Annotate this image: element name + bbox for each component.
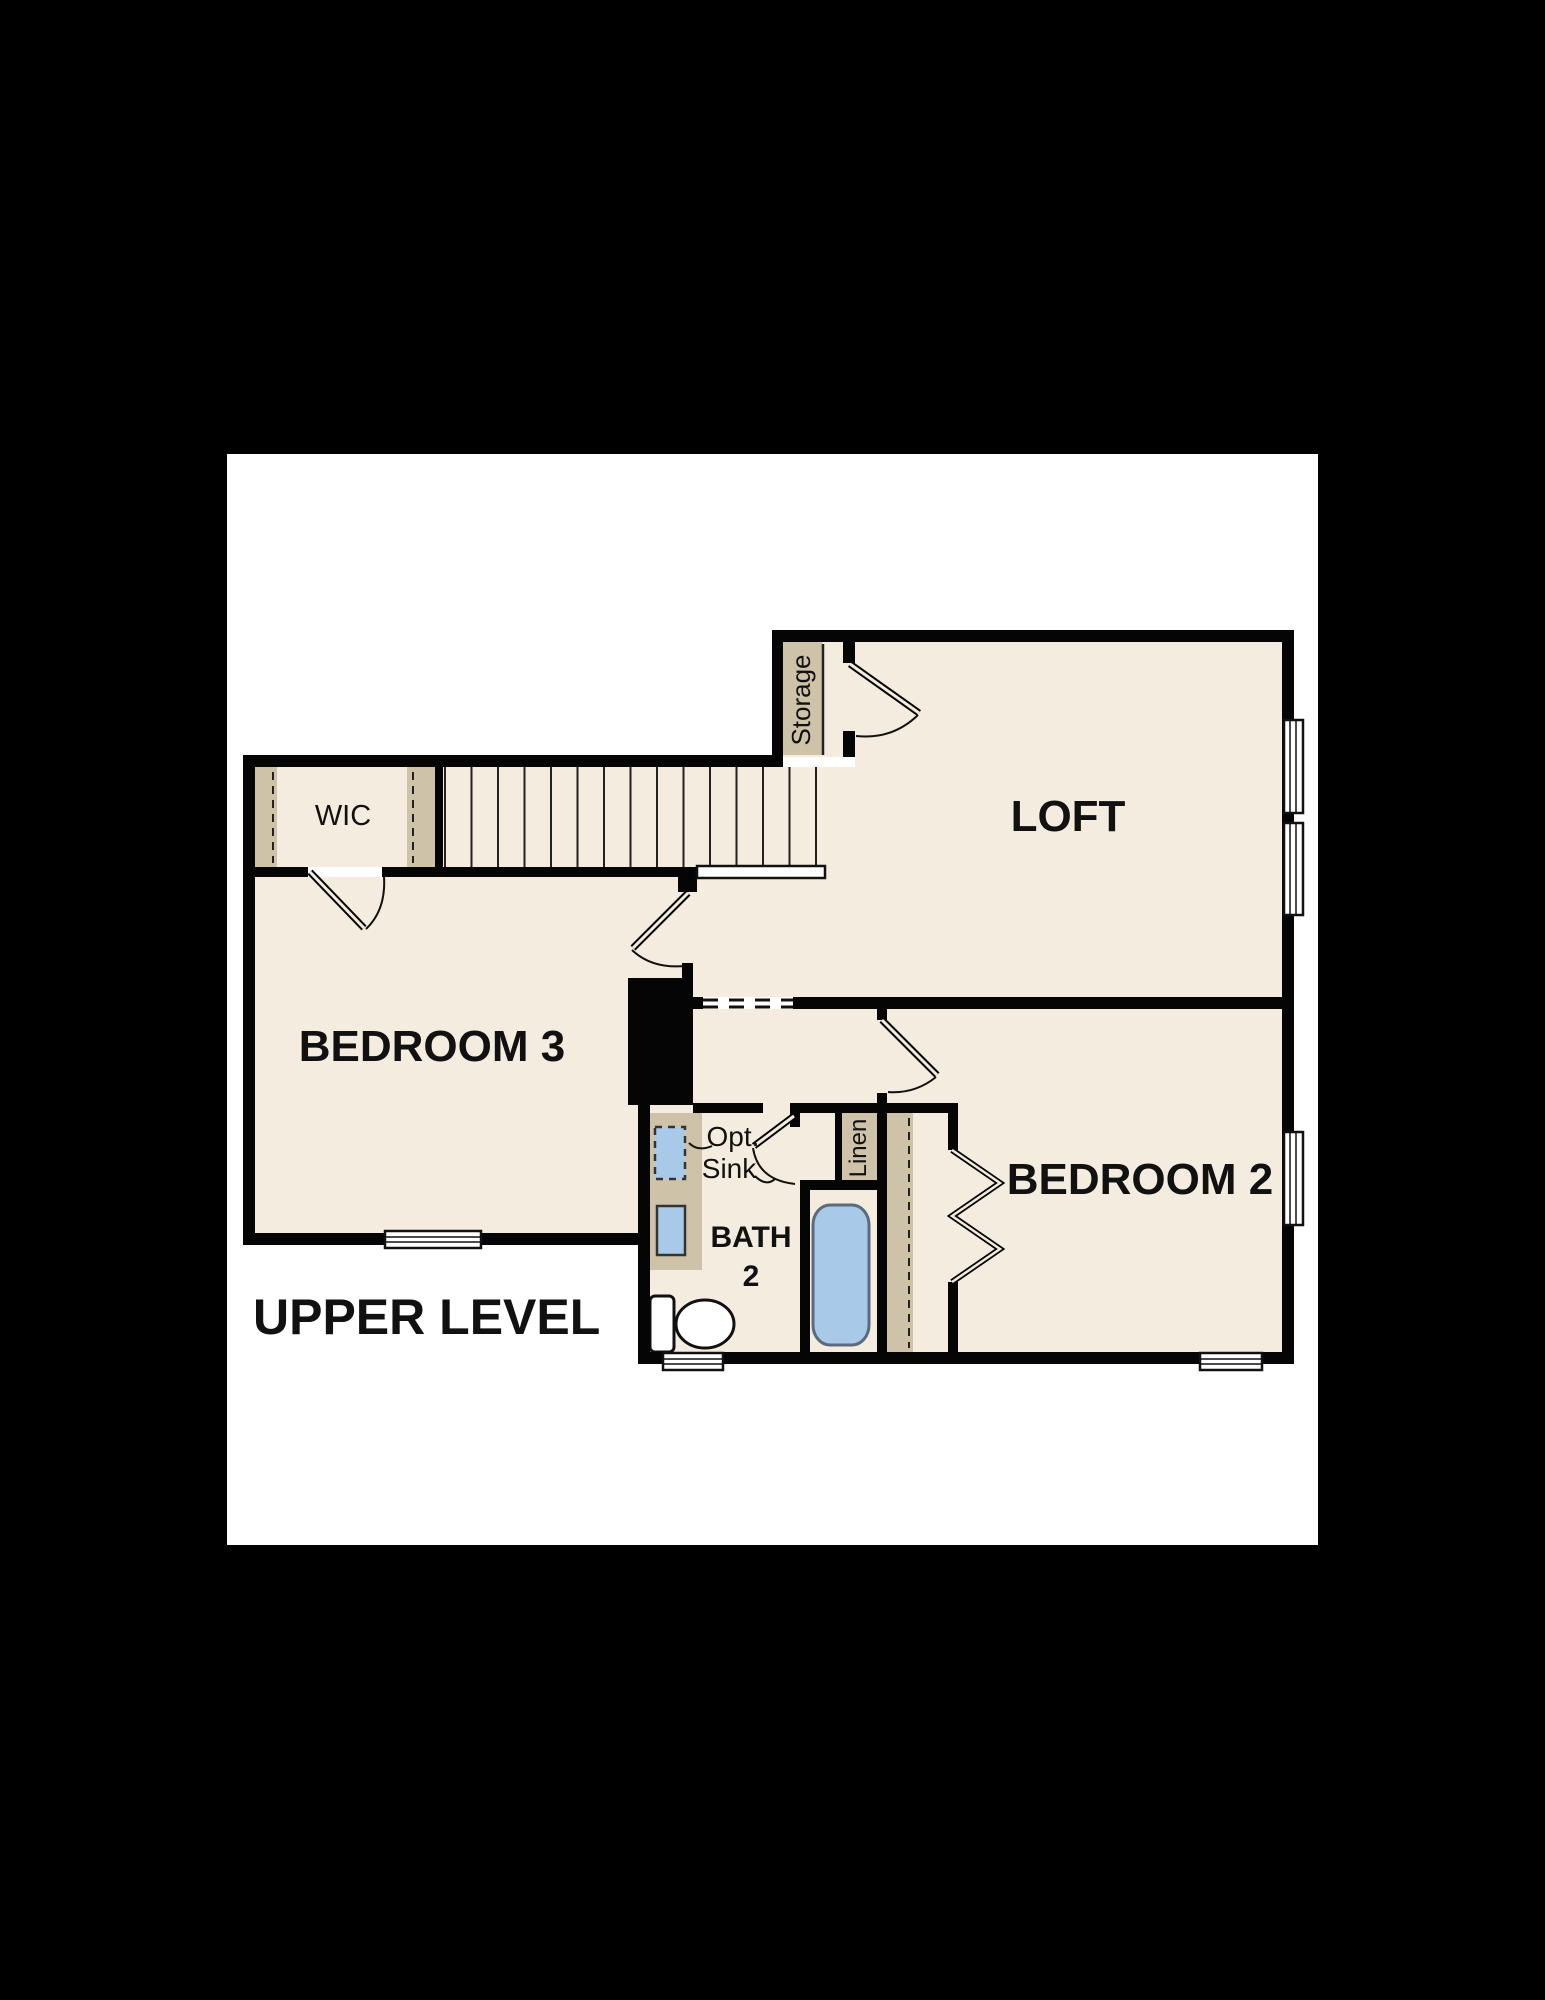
bathtub bbox=[813, 1205, 869, 1345]
wall-bath-left bbox=[638, 1105, 650, 1364]
floor-hall bbox=[628, 877, 1282, 997]
wall-linen-left bbox=[835, 1113, 842, 1190]
toilet-bowl bbox=[676, 1300, 734, 1348]
toilet bbox=[650, 1296, 734, 1352]
wall-chase bbox=[628, 978, 693, 1105]
wall-wic-bottom-right bbox=[382, 867, 443, 877]
wall-storage-left bbox=[772, 642, 783, 755]
wall-closet-front-top bbox=[948, 1113, 958, 1150]
wall-wic-stairs-top bbox=[243, 755, 783, 767]
room-label-loft: LOFT bbox=[1011, 792, 1126, 841]
wall-bottom bbox=[638, 1352, 1294, 1364]
wall-storage-stub-top bbox=[843, 642, 855, 663]
window-bath-bottom bbox=[663, 1353, 723, 1370]
wall-storage-stub-bottom bbox=[843, 731, 855, 757]
label-opt-sink-line1: Opt. bbox=[707, 1121, 760, 1152]
room-label-bath-line2: 2 bbox=[743, 1260, 760, 1293]
wall-tub-left bbox=[800, 1190, 810, 1352]
room-label-bedroom2: BEDROOM 2 bbox=[1007, 1155, 1273, 1204]
wall-bedroom2-left bbox=[877, 1093, 887, 1352]
room-label-bath-line1: BATH bbox=[710, 1221, 791, 1254]
window-bedroom3-bottom bbox=[385, 1231, 481, 1248]
wall-bath-top-left bbox=[693, 1103, 763, 1113]
wall-closet-top bbox=[887, 1103, 958, 1113]
wall-loft-bottom bbox=[793, 997, 1294, 1009]
wic-shelf-right bbox=[407, 767, 435, 867]
label-opt-sink-line2: Sink bbox=[702, 1153, 757, 1184]
toilet-tank bbox=[650, 1296, 674, 1352]
stair-railing bbox=[697, 866, 825, 878]
wall-wic-right bbox=[435, 767, 443, 867]
page-title: UPPER LEVEL bbox=[253, 1289, 600, 1345]
floor-plan-svg: LOFT BEDROOM 3 BEDROOM 2 BATH 2 WIC Stor… bbox=[0, 0, 1545, 2000]
wall-top bbox=[772, 630, 1294, 642]
window-loft-1 bbox=[1284, 720, 1303, 813]
wall-wic-bottom-left bbox=[255, 867, 308, 877]
wall-left bbox=[243, 755, 255, 1245]
room-label-linen: Linen bbox=[845, 1119, 872, 1178]
wall-hall-stub bbox=[693, 997, 703, 1009]
wall-bedroom2-left-stub bbox=[877, 1009, 887, 1020]
window-bedroom2-bottom bbox=[1200, 1353, 1262, 1370]
room-label-storage: Storage bbox=[786, 654, 816, 745]
wall-newel-stub bbox=[678, 867, 697, 892]
floor-plan-page: LOFT BEDROOM 3 BEDROOM 2 BATH 2 WIC Stor… bbox=[0, 0, 1545, 2000]
window-bedroom2-right bbox=[1284, 1132, 1303, 1225]
window-loft-2 bbox=[1284, 823, 1303, 915]
room-label-bedroom3: BEDROOM 3 bbox=[299, 1022, 565, 1071]
bath-sink bbox=[657, 1206, 685, 1255]
optional-sink bbox=[655, 1127, 685, 1179]
wall-stair-bottom bbox=[443, 867, 695, 877]
floor-stairs bbox=[443, 767, 855, 877]
wall-bath-top-right bbox=[790, 1103, 887, 1113]
wall-linen-bottom bbox=[800, 1180, 877, 1190]
room-label-wic: WIC bbox=[315, 800, 371, 832]
wall-closet-front-bottom bbox=[948, 1282, 958, 1352]
